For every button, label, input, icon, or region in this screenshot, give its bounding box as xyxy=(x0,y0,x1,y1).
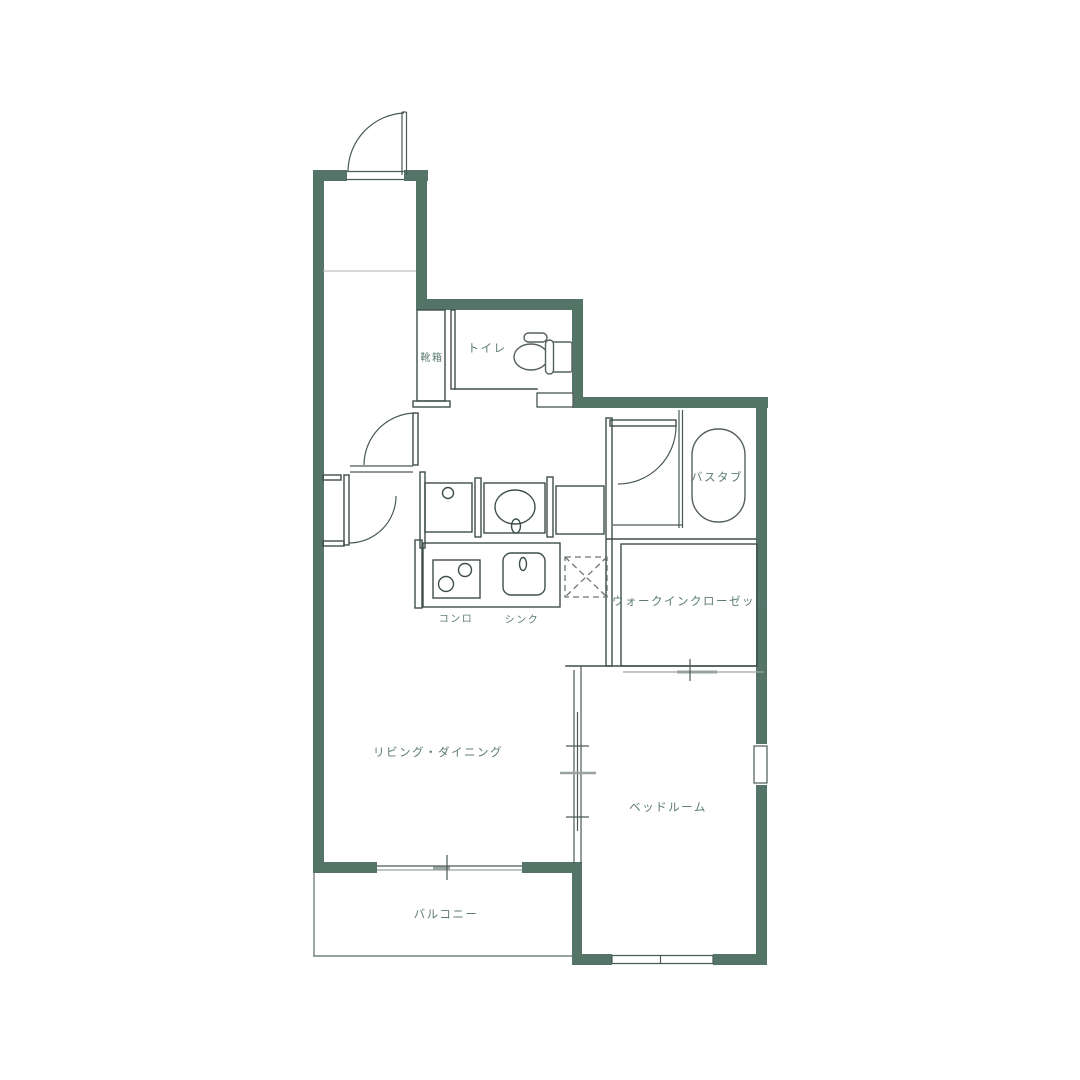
kitchen-sink-icon xyxy=(503,553,545,595)
bathtub-label: バスタブ xyxy=(691,470,743,484)
refrigerator-space-icon xyxy=(565,557,607,597)
exterior-walls xyxy=(313,170,768,965)
wall-living-bottom-right xyxy=(522,862,582,873)
entrance xyxy=(323,112,416,271)
wall-entry-right xyxy=(416,170,427,310)
wall-bedroom-bottom-right xyxy=(713,954,767,965)
washroom-door-icon xyxy=(323,475,396,546)
bathroom xyxy=(606,410,756,666)
wall-toilet-right xyxy=(572,299,583,408)
floor-plan-page: 靴箱 トイレ バスタブ ウォークインクローゼット コンロ シンク リビング・ダイ… xyxy=(0,0,1080,1080)
shoebox-label: 靴箱 xyxy=(421,351,444,364)
wall-right-lower xyxy=(756,783,767,965)
bath-closet-wall xyxy=(606,418,612,666)
walk-in-closet-label: ウォークインクローゼット xyxy=(612,595,768,608)
living-dining-label: リビング・ダイニング xyxy=(373,745,503,759)
wall-stub-upper xyxy=(323,475,341,480)
washer-space-icon xyxy=(425,483,472,532)
entry-door-icon xyxy=(348,112,407,175)
stove-label: コンロ xyxy=(439,614,474,625)
wall-stub-lower xyxy=(323,541,344,546)
washroom-stub-1 xyxy=(475,478,481,537)
wall-toilet-top xyxy=(416,299,583,310)
closet-sliding-door-icon xyxy=(566,659,764,681)
living-door-leaf xyxy=(413,413,418,465)
sink-label: シンク xyxy=(505,614,540,626)
toilet-icon xyxy=(514,333,572,374)
stove-burners-icon xyxy=(433,560,480,598)
kitchen xyxy=(415,540,607,608)
bedroom-label: ベッドルーム xyxy=(629,801,707,814)
washroom xyxy=(420,472,604,548)
shoebox-base xyxy=(413,401,450,407)
living-door-arc xyxy=(364,413,416,465)
wall-balcony-right xyxy=(572,873,582,958)
entry-door-arc xyxy=(348,113,404,171)
toilet-label: トイレ xyxy=(468,343,507,355)
bedroom-bottom-window-icon xyxy=(612,954,713,966)
kitchen-left-wall xyxy=(415,540,422,608)
bath-door-arc xyxy=(618,426,676,484)
toilet-left-wall xyxy=(451,310,455,389)
wall-living-bottom-left xyxy=(313,862,377,873)
wall-left xyxy=(313,170,324,873)
walk-in-closet xyxy=(566,544,764,681)
washroom-stub-2 xyxy=(547,477,553,537)
washroom-door-leaf xyxy=(344,475,349,545)
room-labels: 靴箱 トイレ バスタブ ウォークインクローゼット コンロ シンク リビング・ダイ… xyxy=(373,343,768,921)
living-door-icon xyxy=(350,413,418,472)
balcony-sliding-window-icon xyxy=(377,855,522,880)
toilet-room xyxy=(451,310,573,407)
toilet-door xyxy=(537,393,573,407)
bath-door-leaf xyxy=(610,420,676,426)
bedroom-side-window-icon xyxy=(753,744,769,785)
washroom-counter xyxy=(556,486,604,534)
floor-plan-canvas: 靴箱 トイレ バスタブ ウォークインクローゼット コンロ シンク リビング・ダイ… xyxy=(0,0,1080,1080)
bedroom-sliding-door-icon xyxy=(560,666,596,864)
bath-door-icon xyxy=(610,420,676,484)
washroom-left-wall xyxy=(420,472,425,548)
wall-bath-top xyxy=(572,397,768,408)
washbasin-icon xyxy=(484,483,545,533)
washroom-door-arc xyxy=(349,496,396,543)
balcony-label: バルコニー xyxy=(414,908,479,921)
